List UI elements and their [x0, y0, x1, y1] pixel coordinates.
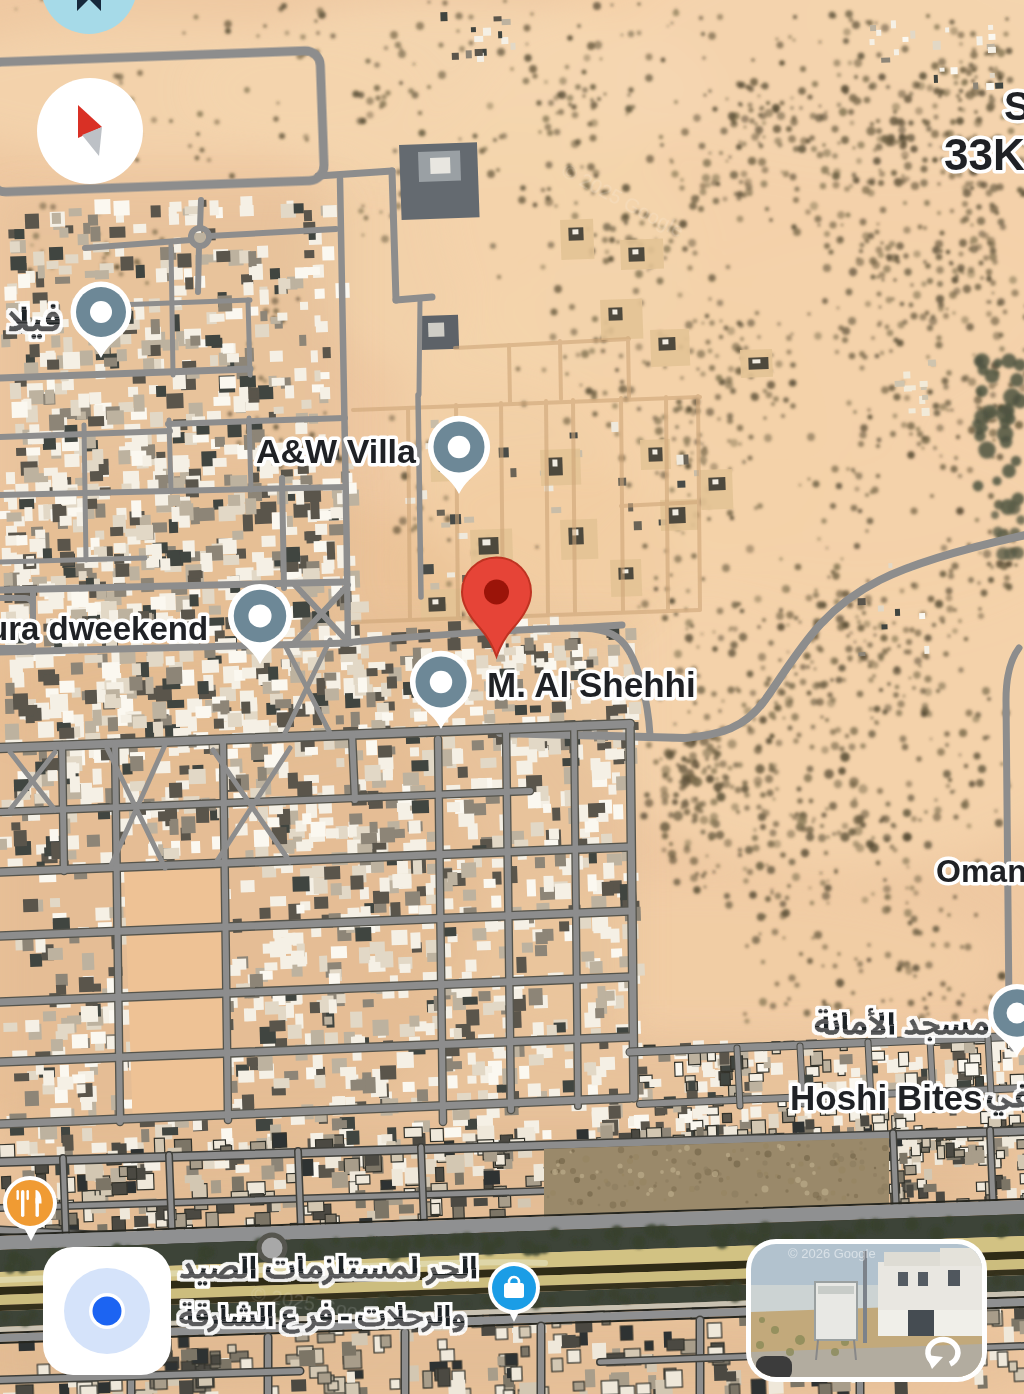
svg-text:33KV: 33KV [944, 130, 1024, 179]
svg-text:S: S [1004, 84, 1024, 128]
svg-text:M. Al Shehhi: M. Al Shehhi [487, 665, 696, 704]
svg-text:Hoshi Bites: Hoshi Bites [790, 1078, 983, 1117]
svg-text:Omani: Omani [936, 853, 1024, 889]
svg-text:© 2026 Google: © 2026 Google [788, 1246, 876, 1261]
svg-text:ura dweekend: ura dweekend [0, 610, 208, 647]
svg-text:A&W Villa: A&W Villa [256, 432, 417, 470]
